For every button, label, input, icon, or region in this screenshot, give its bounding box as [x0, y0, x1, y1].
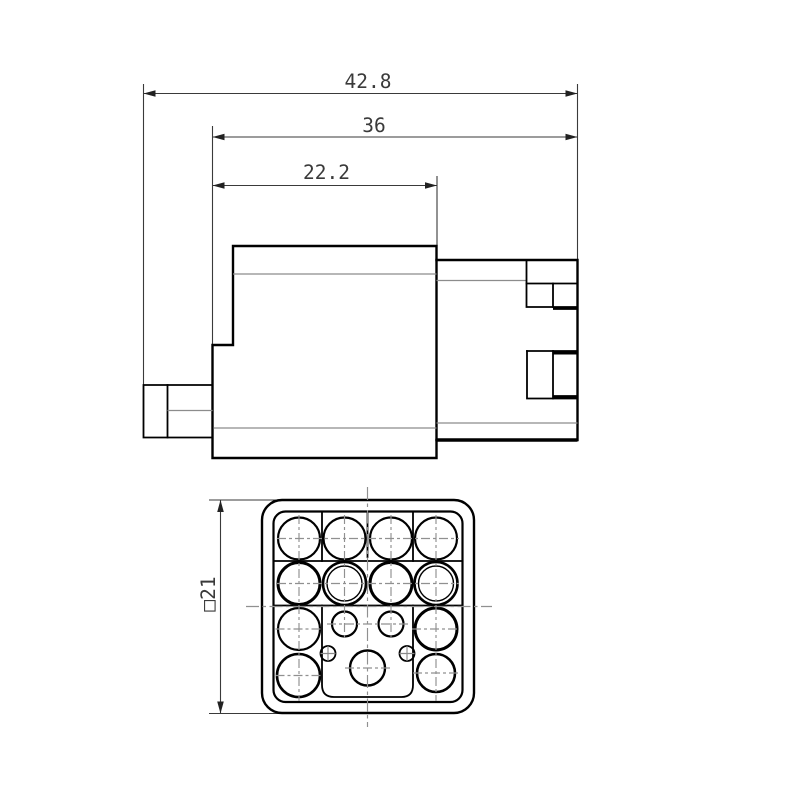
- dimension-housing-length: 36: [213, 114, 578, 140]
- lower-latch-detail: [527, 351, 578, 399]
- drawing-canvas: 42.8 36 22.2: [0, 0, 800, 800]
- dimension-face-size: □21: [197, 500, 281, 714]
- housing-body-outline: [213, 246, 437, 458]
- dimension-label-face-size: □21: [197, 576, 220, 611]
- dimension-front-length: 22.2: [213, 161, 438, 189]
- arrowhead-icon: [144, 90, 156, 97]
- arrowhead-icon: [217, 702, 224, 714]
- dimension-label-overall: 42.8: [345, 70, 392, 93]
- arrowhead-icon: [213, 182, 225, 189]
- dimension-label-front: 22.2: [303, 161, 350, 184]
- arrowhead-icon: [213, 134, 225, 141]
- rear-section-outline: [437, 260, 578, 440]
- front-flange-outline: [144, 385, 213, 438]
- upper-latch-detail: [527, 260, 578, 308]
- arrowhead-icon: [566, 134, 578, 141]
- dimension-label-housing: 36: [362, 114, 385, 137]
- arrowhead-icon: [566, 90, 578, 97]
- cavity-row-4: [277, 646, 455, 697]
- connector-technical-drawing: 42.8 36 22.2: [0, 0, 800, 800]
- face-view: □21: [197, 487, 492, 727]
- arrowhead-icon: [425, 182, 437, 189]
- arrowhead-icon: [217, 500, 224, 512]
- extension-lines: [144, 84, 578, 385]
- dimension-overall-length: 42.8: [144, 70, 578, 97]
- side-view: 42.8 36 22.2: [144, 70, 578, 458]
